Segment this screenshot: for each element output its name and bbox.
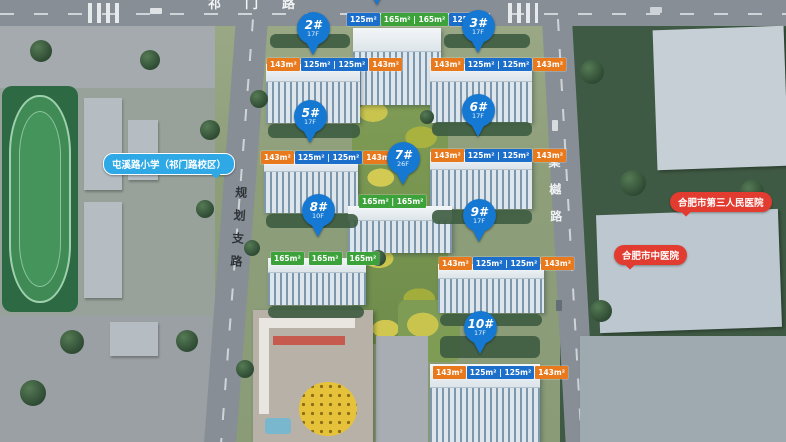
building-floors: 17F (472, 113, 484, 120)
building-floors: 17F (473, 218, 485, 225)
unit-tags-building-2: 143m² 125m² | 125m² 143m² (267, 58, 402, 71)
vehicle (552, 120, 558, 131)
pin-tail (473, 341, 487, 354)
tree (244, 240, 260, 256)
building-pin-2[interactable]: 2# 17F (295, 12, 331, 60)
building-pin-3[interactable]: 3# 17F (460, 10, 496, 58)
track-infield (19, 111, 61, 287)
building-pin-6[interactable]: 6# 17F (460, 94, 496, 142)
building-facade (268, 273, 366, 305)
pin-tail (472, 229, 486, 242)
unit-area-tag: 165m² (347, 252, 380, 265)
vehicle (650, 7, 662, 13)
unit-area-tag: 143m² (369, 58, 402, 71)
tree (250, 90, 268, 108)
building-pin-8[interactable]: 8# 10F (300, 194, 336, 242)
crosswalk (88, 3, 122, 23)
pin-head: 8# 10F (302, 194, 335, 227)
building-floors: 10F (312, 213, 324, 220)
tree (20, 380, 46, 406)
pin-head: 3# 17F (462, 10, 495, 43)
unit-area-tag: 143m² (433, 366, 466, 379)
parking-structure (580, 336, 786, 442)
building-9 (438, 264, 544, 312)
tree (60, 330, 84, 354)
tree (30, 40, 52, 62)
unit-area-tag: 143m² (535, 366, 568, 379)
sports-field (2, 86, 78, 312)
pin-head: 5# 17F (294, 100, 327, 133)
building-facade (430, 388, 540, 442)
tree (590, 300, 612, 322)
hedge (268, 306, 364, 318)
building-floors: 26F (397, 161, 409, 168)
unit-tags-building-6: 143m² 125m² | 125m² 143m² (431, 149, 566, 162)
building-facade (438, 279, 544, 313)
parking-strip (376, 336, 428, 442)
school-building (110, 322, 158, 356)
pin-tail (370, 0, 384, 5)
tree (420, 110, 434, 124)
pin-tail (311, 224, 325, 237)
pin-head: 6# 17F (462, 94, 495, 127)
building-pin-7[interactable]: 7# 26F (385, 142, 421, 190)
unit-area-tag: 143m² (541, 257, 574, 270)
tree (200, 120, 220, 140)
unit-tags-building-8: 165m² 165m² 165m² (271, 252, 379, 265)
pin-head: 7# 26F (387, 142, 420, 175)
building-pin-5[interactable]: 5# 17F (292, 100, 328, 148)
poi-hospital-1-label: 合肥市第三人民医院 (678, 198, 764, 209)
kindergarten-block (253, 310, 373, 442)
kindergarten-red-roof (273, 336, 345, 345)
unit-tags-building-3: 143m² 125m² | 125m² 143m² (431, 58, 566, 71)
unit-area-tag: 125m² (347, 13, 380, 26)
building-floors: 17F (472, 29, 484, 36)
unit-tags-building-9: 143m² 125m² | 125m² 143m² (439, 257, 574, 270)
building-pin-10[interactable]: 10# 17F (462, 311, 498, 359)
unit-area-tag: 143m² (533, 58, 566, 71)
tree (196, 200, 214, 218)
building-facade (348, 221, 452, 253)
crosswalk (508, 3, 538, 23)
unit-tags-building-5: 143m² 125m² | 125m² 143m² (261, 151, 396, 164)
vehicle (556, 300, 562, 311)
unit-area-tag: 165m² (271, 252, 304, 265)
tree (620, 170, 646, 196)
tree (176, 330, 198, 352)
pin-tail (471, 40, 485, 53)
pin-tail (306, 42, 320, 55)
unit-area-tag: 125m² | 125m² (465, 58, 532, 71)
building-floors: 17F (304, 119, 316, 126)
kindergarten-roof (259, 318, 355, 328)
school-building (84, 202, 122, 298)
unit-area-tag: 143m² (261, 151, 294, 164)
school-building (84, 98, 122, 190)
unit-area-tag: 125m² | 125m² (465, 149, 532, 162)
building-floors: 17F (474, 330, 486, 337)
tree (236, 360, 254, 378)
unit-area-tag: 165m² | 165m² (359, 195, 426, 208)
kindergarten-playground (299, 382, 357, 436)
unit-tags-building-10: 143m² 125m² | 125m² 143m² (433, 366, 568, 379)
building-roof (353, 28, 441, 52)
unit-area-tag: 143m² (533, 149, 566, 162)
site-plan-canvas: 祁门路 规划支路 棠樾路 2# 17F 3# 17F 5# 17F 6# 17F… (0, 0, 786, 442)
kindergarten-roof (259, 318, 269, 414)
pin-head: 2# 17F (297, 12, 330, 45)
unit-area-tag: 125m² | 125m² (473, 257, 540, 270)
poi-hospital-2-bubble[interactable]: 合肥市中医院 (614, 245, 687, 265)
road-label-qimenlu: 祁门路 (208, 0, 319, 12)
tree (140, 50, 160, 70)
unit-area-tag: 143m² (431, 58, 464, 71)
hospital-building (596, 209, 782, 333)
kindergarten-pool (265, 418, 291, 434)
pin-tail (396, 172, 410, 185)
building-pin-partial[interactable] (359, 0, 395, 10)
pin-tail (471, 124, 485, 137)
building-pin-9[interactable]: 9# 17F (461, 199, 497, 247)
poi-hospital-1-bubble[interactable]: 合肥市第三人民医院 (670, 192, 772, 212)
unit-tags-building-7: 165m² | 165m² (359, 195, 426, 208)
pin-head: 9# 17F (463, 199, 496, 232)
unit-area-tag: 165m² (309, 252, 342, 265)
pin-head: 10# 17F (464, 311, 497, 344)
vehicle (150, 8, 162, 14)
tree (580, 60, 604, 84)
unit-area-tag: 125m² | 125m² (467, 366, 534, 379)
poi-school-label: 屯溪路小学（祁门路校区） (112, 160, 226, 171)
running-track (9, 95, 71, 303)
pin-tail (303, 130, 317, 143)
building-floors: 17F (307, 31, 319, 38)
unit-area-tag: 143m² (439, 257, 472, 270)
poi-school-bubble[interactable]: 屯溪路小学（祁门路校区） (103, 153, 235, 175)
hospital-building (653, 26, 786, 170)
road-label-tangyue: 棠樾路 (546, 156, 566, 238)
unit-area-tag: 143m² (431, 149, 464, 162)
unit-area-tag: 165m² | 165m² (381, 13, 448, 26)
unit-area-tag: 125m² | 125m² (295, 151, 362, 164)
